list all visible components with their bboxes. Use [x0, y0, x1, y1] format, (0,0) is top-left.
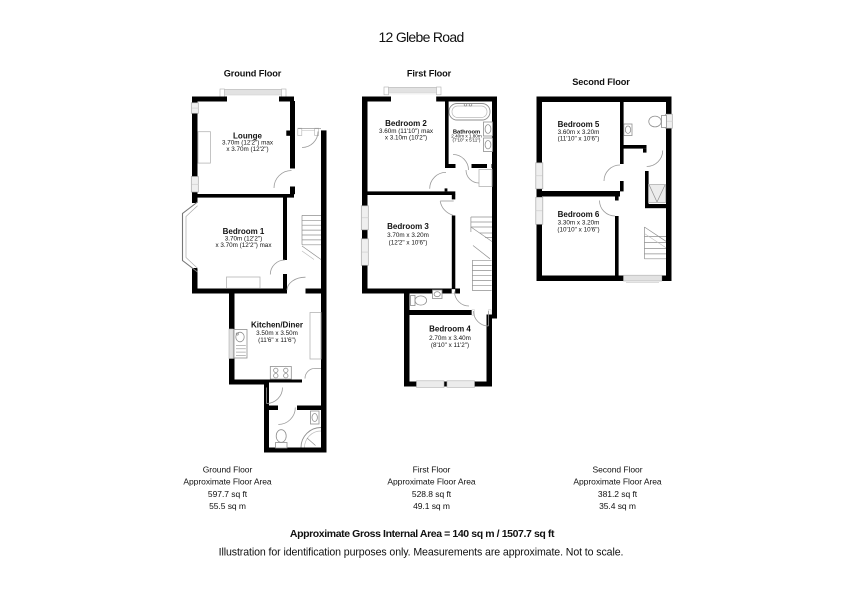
svg-text:Second Floor: Second Floor [593, 465, 643, 475]
svg-text:(8'10" x 11'2"): (8'10" x 11'2") [431, 342, 469, 349]
svg-text:First Floor: First Floor [407, 69, 452, 79]
svg-text:(11'6" x 11'6"): (11'6" x 11'6") [258, 337, 296, 344]
svg-text:Bedroom 4: Bedroom 4 [429, 325, 471, 334]
svg-text:Approximate Floor Area: Approximate Floor Area [573, 477, 662, 487]
svg-text:12 Glebe Road: 12 Glebe Road [378, 29, 463, 45]
svg-text:3.30m x 3.20m: 3.30m x 3.20m [558, 220, 600, 227]
svg-text:Kitchen/Diner: Kitchen/Diner [251, 321, 303, 330]
svg-text:2.70m x 3.40m: 2.70m x 3.40m [429, 335, 471, 342]
svg-text:(11'10" x 10'6"): (11'10" x 10'6") [558, 135, 600, 142]
svg-text:Bedroom 6: Bedroom 6 [558, 210, 600, 219]
svg-text:Bedroom 3: Bedroom 3 [387, 222, 429, 231]
svg-text:(10'10" x 10'6"): (10'10" x 10'6") [557, 227, 599, 234]
svg-text:Bedroom 2: Bedroom 2 [385, 119, 427, 128]
svg-text:35.4 sq m: 35.4 sq m [599, 501, 636, 511]
svg-text:3.70m x 3.20m: 3.70m x 3.20m [387, 232, 429, 239]
svg-text:55.5 sq m: 55.5 sq m [209, 501, 246, 511]
svg-text:(7'10" x 5'11"): (7'10" x 5'11") [453, 138, 481, 143]
svg-text:Bedroom 5: Bedroom 5 [558, 120, 600, 129]
svg-text:381.2 sq ft: 381.2 sq ft [598, 489, 638, 499]
svg-text:x 3.10m (10'2"): x 3.10m (10'2") [385, 135, 427, 142]
svg-text:x 3.70m (12'2") max: x 3.70m (12'2") max [216, 242, 273, 249]
svg-text:Illustration for identificatio: Illustration for identification purposes… [219, 547, 624, 559]
svg-text:Second Floor: Second Floor [572, 77, 630, 87]
svg-text:49.1 sq m: 49.1 sq m [413, 501, 450, 511]
svg-text:Approximate Floor Area: Approximate Floor Area [387, 477, 476, 487]
svg-text:597.7 sq ft: 597.7 sq ft [208, 489, 248, 499]
svg-text:First Floor: First Floor [413, 465, 451, 475]
svg-text:Approximate Floor Area: Approximate Floor Area [183, 477, 272, 487]
svg-text:(12'2" x 10'6"): (12'2" x 10'6") [389, 240, 428, 247]
svg-text:Ground Floor: Ground Floor [203, 465, 253, 475]
svg-text:Approximate Gross Internal Are: Approximate Gross Internal Area = 140 sq… [290, 528, 555, 540]
svg-text:x 3.70m (12'2"): x 3.70m (12'2") [226, 146, 268, 153]
svg-text:528.8 sq ft: 528.8 sq ft [412, 489, 452, 499]
svg-text:Ground Floor: Ground Floor [224, 69, 282, 79]
